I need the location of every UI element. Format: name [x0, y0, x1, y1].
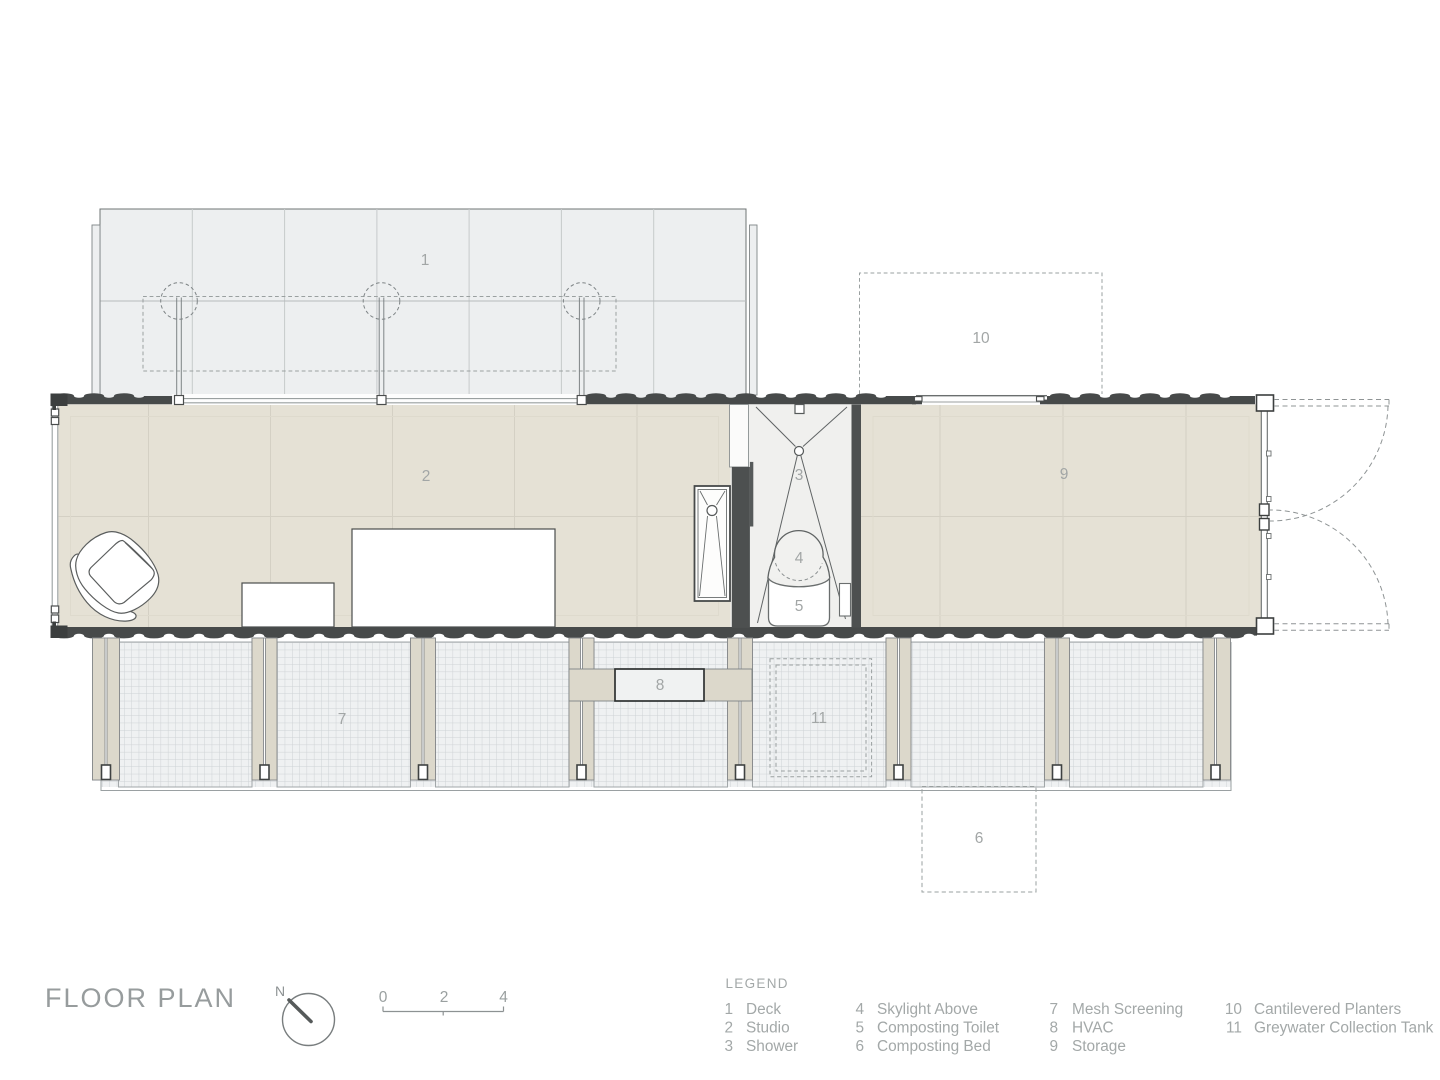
- svg-text:3: 3: [724, 1038, 733, 1055]
- svg-text:11: 11: [811, 710, 827, 727]
- svg-text:1: 1: [421, 252, 430, 269]
- svg-text:FLOOR PLAN: FLOOR PLAN: [45, 983, 236, 1013]
- svg-text:4: 4: [795, 550, 804, 567]
- svg-text:Deck: Deck: [746, 1001, 781, 1018]
- svg-text:HVAC: HVAC: [1072, 1020, 1114, 1037]
- svg-text:9: 9: [1060, 466, 1069, 483]
- svg-text:Studio: Studio: [746, 1020, 790, 1037]
- svg-text:11: 11: [1226, 1020, 1242, 1037]
- svg-text:10: 10: [1225, 1001, 1242, 1018]
- svg-text:N: N: [275, 983, 285, 999]
- svg-text:7: 7: [338, 711, 347, 728]
- svg-text:8: 8: [1049, 1020, 1058, 1037]
- svg-text:Skylight Above: Skylight Above: [877, 1001, 978, 1018]
- svg-text:2: 2: [724, 1020, 733, 1037]
- svg-text:5: 5: [855, 1020, 864, 1037]
- svg-text:6: 6: [975, 830, 984, 847]
- svg-text:Mesh Screening: Mesh Screening: [1072, 1001, 1183, 1018]
- svg-text:7: 7: [1049, 1001, 1058, 1018]
- svg-text:0: 0: [379, 989, 388, 1006]
- svg-text:Storage: Storage: [1072, 1038, 1126, 1055]
- svg-text:6: 6: [855, 1038, 864, 1055]
- svg-text:LEGEND: LEGEND: [726, 976, 789, 991]
- svg-text:10: 10: [972, 330, 990, 347]
- svg-text:3: 3: [795, 467, 804, 484]
- svg-text:Composting Bed: Composting Bed: [877, 1038, 991, 1055]
- svg-text:4: 4: [499, 989, 508, 1006]
- svg-text:Cantilevered Planters: Cantilevered Planters: [1254, 1001, 1401, 1018]
- svg-text:2: 2: [422, 468, 431, 485]
- svg-text:Greywater Collection Tank: Greywater Collection Tank: [1254, 1020, 1434, 1037]
- svg-text:2: 2: [440, 989, 449, 1006]
- svg-text:Shower: Shower: [746, 1038, 798, 1055]
- svg-text:9: 9: [1049, 1038, 1058, 1055]
- svg-text:5: 5: [795, 598, 804, 615]
- svg-text:1: 1: [724, 1001, 733, 1018]
- svg-text:4: 4: [855, 1001, 864, 1018]
- svg-text:8: 8: [656, 677, 665, 694]
- svg-text:Composting Toilet: Composting Toilet: [877, 1020, 1000, 1037]
